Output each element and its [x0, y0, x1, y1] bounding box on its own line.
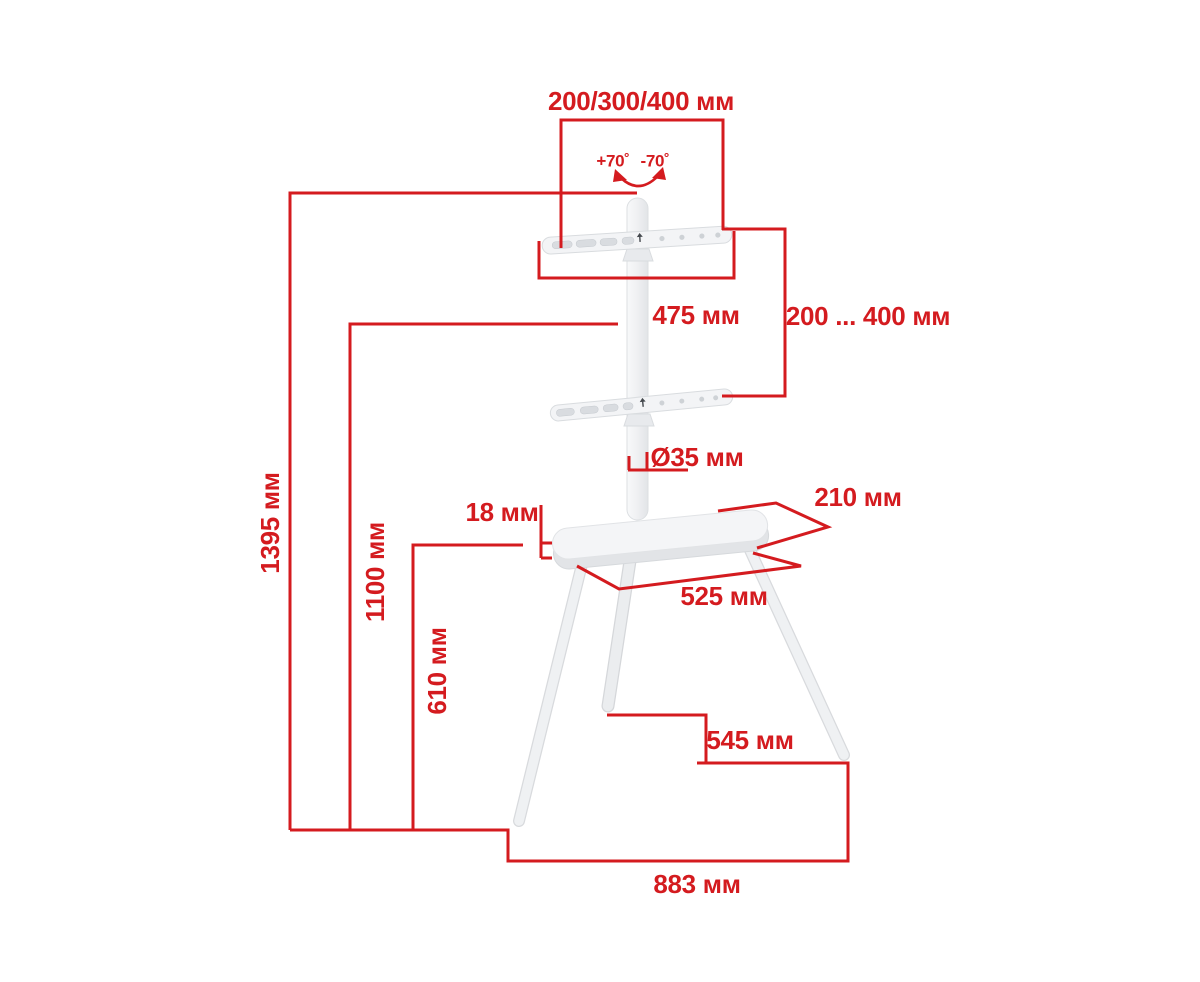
label-shelf-depth: 210 мм: [814, 484, 901, 510]
dim-base-width-line: [290, 763, 848, 861]
shelf: [551, 509, 770, 571]
leg-front-left: [519, 556, 584, 821]
label-shelf-width: 525 мм: [680, 583, 767, 609]
label-total-height: 1395 мм: [257, 472, 283, 573]
label-vesa-height-range: 200 ... 400 мм: [786, 303, 950, 329]
dim-base-depth-line: [607, 715, 706, 763]
stand-drawing: [519, 198, 844, 821]
leg-back: [608, 561, 630, 706]
label-bracket-width: 475 мм: [652, 302, 739, 328]
label-pole-diameter: Ø35 мм: [650, 444, 743, 470]
pole-collar-bottom: [624, 414, 654, 426]
diagram-drawing: [0, 0, 1200, 982]
label-shelf-thickness: 18 мм: [465, 499, 538, 525]
pole-collar-top: [623, 249, 653, 261]
label-base-width: 883 мм: [653, 871, 740, 897]
label-vesa-width: 200/300/400 мм: [548, 88, 734, 114]
label-tilt-ccw: -70˚: [640, 153, 669, 170]
tv-stand-dimension-diagram: 200/300/400 мм +70˚ -70˚ 475 мм 200 ... …: [0, 0, 1200, 982]
label-base-depth: 545 мм: [706, 727, 793, 753]
label-tilt-cw: +70˚: [596, 153, 629, 170]
label-mount-height: 1100 мм: [362, 522, 388, 622]
label-shelf-height: 610 мм: [424, 627, 450, 714]
dim-shelf-thickness-line: [541, 505, 552, 558]
dim-total-height-line: [290, 193, 637, 830]
